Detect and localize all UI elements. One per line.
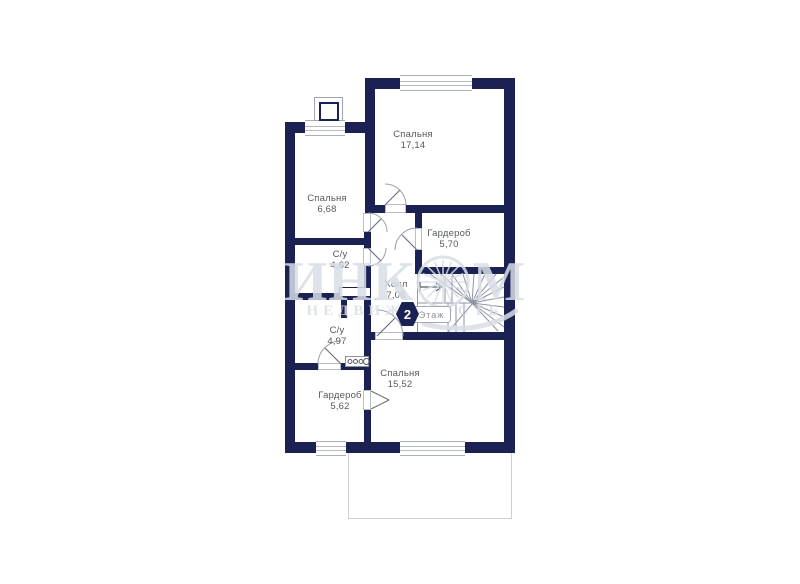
room-label-hall-706: Холл 7,06: [356, 279, 436, 301]
room-name: Гардероб: [300, 390, 380, 401]
floor-plan-canvas: Спальня 17,14 Спальня 6,68 Гардероб 5,70…: [0, 0, 800, 584]
radiator-circles: [348, 359, 370, 365]
room-area: 5,70: [409, 239, 489, 250]
room-name: Гардероб: [409, 228, 489, 239]
room-name: Спальня: [360, 368, 440, 379]
room-name: С/у: [300, 249, 380, 260]
floor-badge-number: 2: [404, 307, 411, 322]
room-area: 4,62: [300, 260, 380, 271]
floor-label: Этаж: [419, 310, 445, 320]
room-name: Холл: [356, 279, 436, 290]
room-label-wardrobe-562: Гардероб 5,62: [300, 390, 380, 412]
room-label-bedroom-668: Спальня 6,68: [287, 193, 367, 215]
room-name: Спальня: [373, 129, 453, 140]
room-label-bathroom-497: С/у 4,97: [297, 325, 377, 347]
room-area: 17,14: [373, 140, 453, 151]
room-label-bedroom-1714: Спальня 17,14: [373, 129, 453, 151]
room-label-wardrobe-570: Гардероб 5,70: [409, 228, 489, 250]
room-label-bathroom-462: С/у 4,62: [300, 249, 380, 271]
room-name: С/у: [297, 325, 377, 336]
room-area: 4,97: [297, 336, 377, 347]
room-area: 7,06: [356, 290, 436, 301]
room-area: 6,68: [287, 204, 367, 215]
room-name: Спальня: [287, 193, 367, 204]
room-area: 15,52: [360, 379, 440, 390]
room-label-bedroom-1552: Спальня 15,52: [360, 368, 440, 390]
room-area: 5,62: [300, 401, 380, 412]
